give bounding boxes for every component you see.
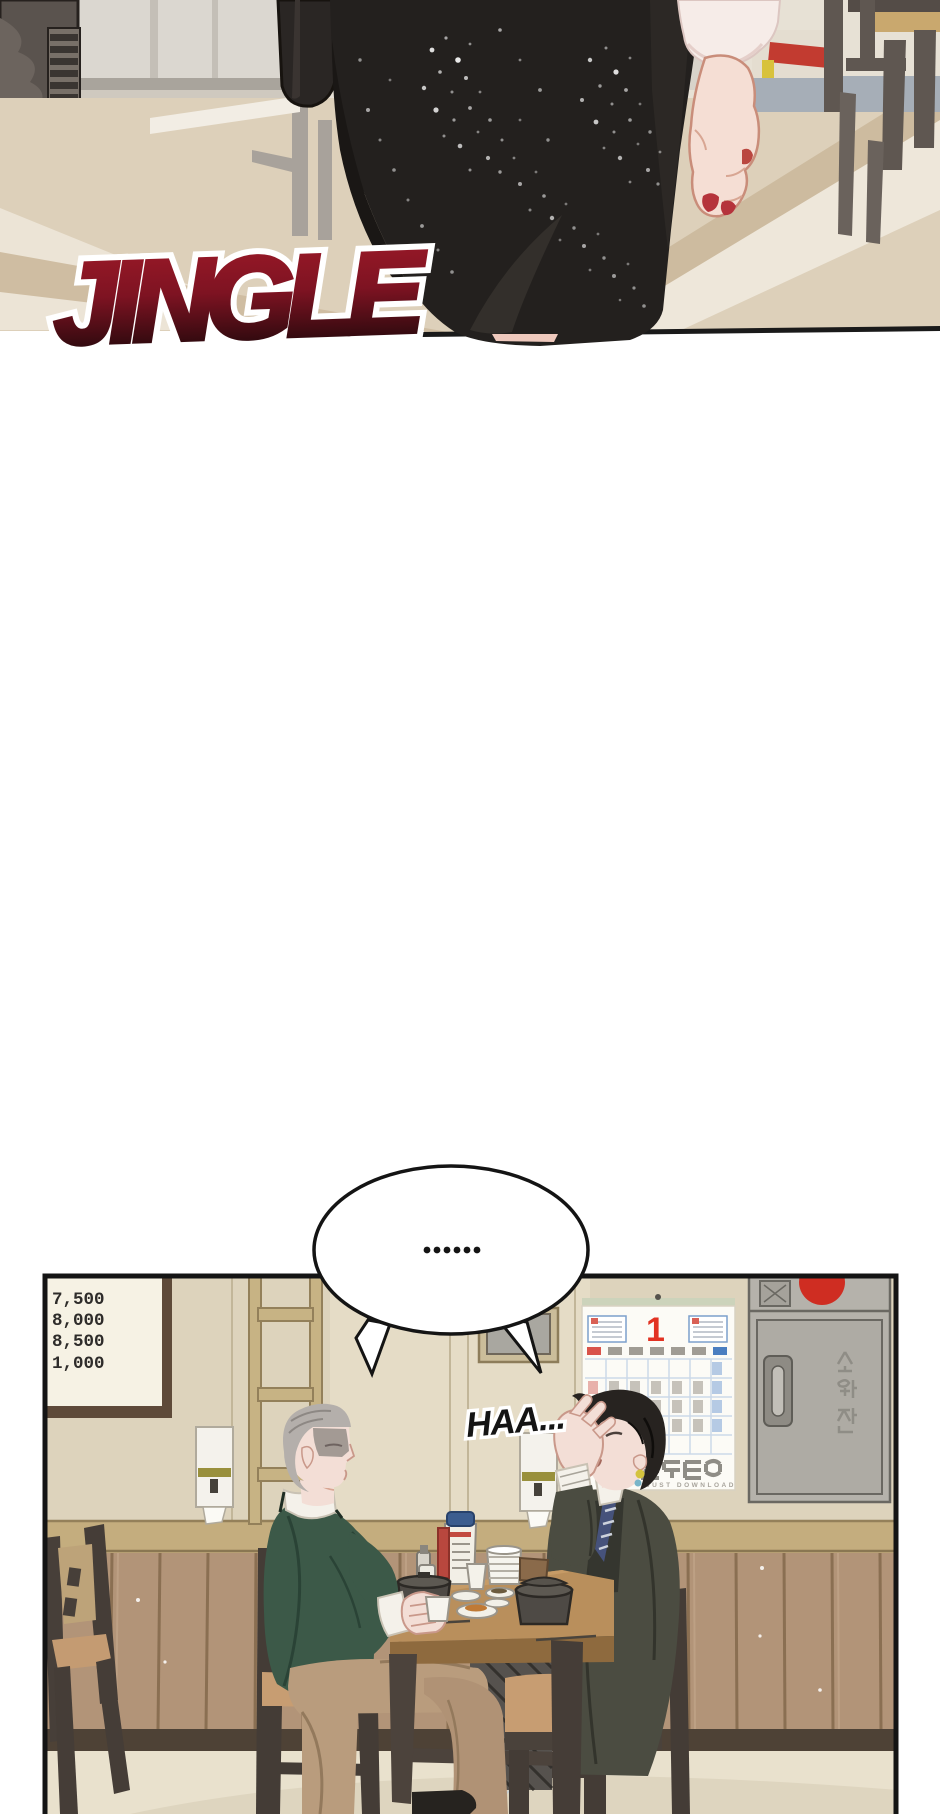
svg-text:JINGLE: JINGLE: [51, 228, 429, 369]
svg-text:7,500: 7,500: [52, 1290, 105, 1310]
svg-text:8,500: 8,500: [52, 1332, 105, 1352]
svg-text:8,000: 8,000: [52, 1311, 105, 1331]
svg-text:1,000: 1,000: [52, 1354, 105, 1374]
svg-text:JUST DOWNLOAD: JUST DOWNLOAD: [646, 1482, 736, 1489]
svg-text:1: 1: [646, 1311, 665, 1349]
